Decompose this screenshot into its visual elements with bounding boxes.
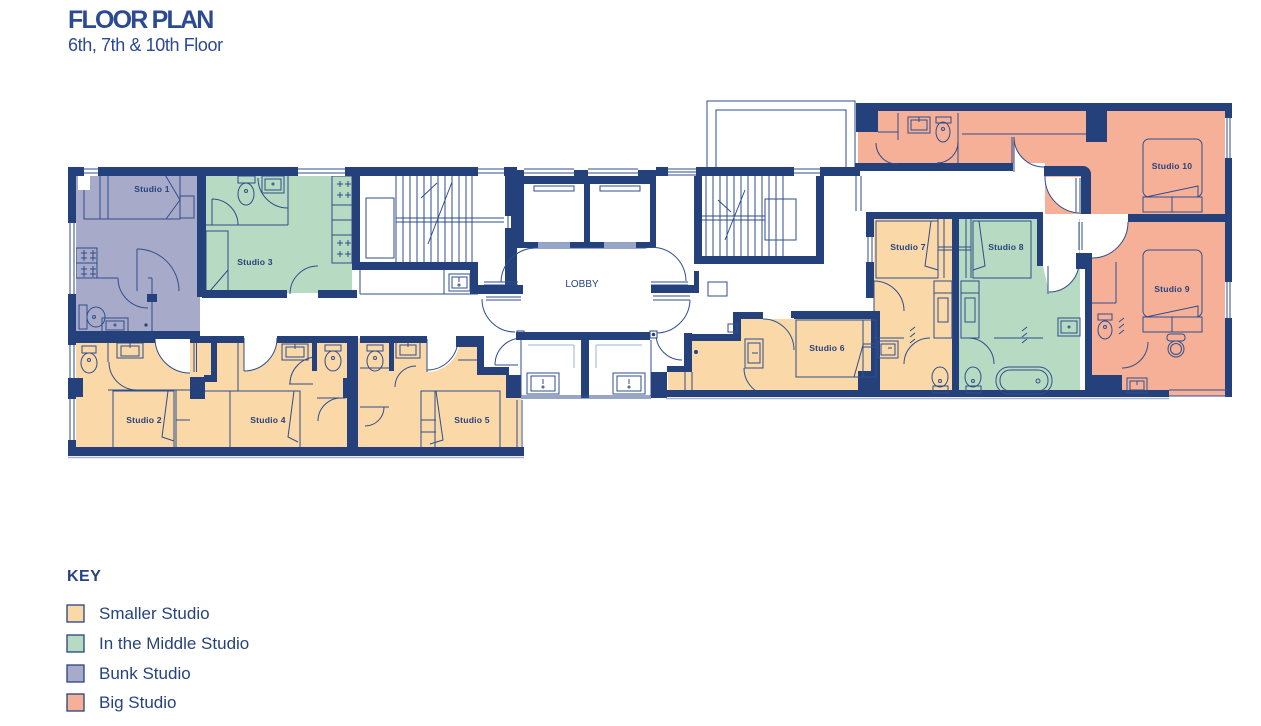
svg-text:Studio 9: Studio 9 (1154, 284, 1190, 294)
svg-text:Studio 8: Studio 8 (988, 242, 1024, 252)
svg-text:Bunk Studio: Bunk Studio (99, 664, 191, 683)
svg-text:Big Studio: Big Studio (99, 693, 177, 712)
svg-text:Studio 3: Studio 3 (237, 257, 273, 267)
svg-text:LOBBY: LOBBY (565, 279, 599, 290)
svg-text:FLOOR PLAN: FLOOR PLAN (68, 6, 213, 34)
svg-text:In the Middle Studio: In the Middle Studio (99, 634, 249, 653)
svg-text:Studio 7: Studio 7 (890, 242, 926, 252)
svg-text:Studio 6: Studio 6 (809, 343, 845, 353)
svg-text:Studio 5: Studio 5 (454, 415, 490, 425)
svg-text:Studio 1: Studio 1 (134, 184, 170, 194)
svg-text:KEY: KEY (67, 568, 101, 585)
svg-text:Studio 2: Studio 2 (126, 415, 162, 425)
svg-text:Studio 4: Studio 4 (250, 415, 286, 425)
svg-text:Smaller Studio: Smaller Studio (99, 604, 210, 623)
svg-text:Studio 10: Studio 10 (1152, 161, 1192, 171)
svg-text:6th, 7th & 10th Floor: 6th, 7th & 10th Floor (68, 35, 223, 55)
